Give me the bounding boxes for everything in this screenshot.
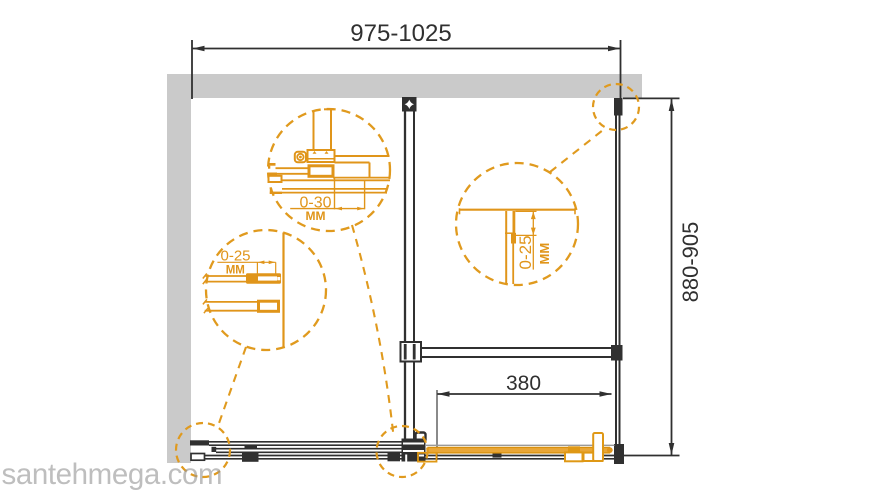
- svg-text:380: 380: [506, 372, 541, 395]
- svg-text:santehmega.com: santehmega.com: [2, 458, 223, 491]
- svg-text:975-1025: 975-1025: [350, 20, 451, 47]
- svg-text:880-905: 880-905: [678, 222, 703, 303]
- svg-text:ММ: ММ: [306, 209, 326, 223]
- svg-text:0-25: 0-25: [220, 247, 250, 264]
- svg-text:ММ: ММ: [226, 264, 245, 276]
- svg-text:0-25: 0-25: [516, 235, 535, 269]
- svg-text:ММ: ММ: [537, 243, 552, 265]
